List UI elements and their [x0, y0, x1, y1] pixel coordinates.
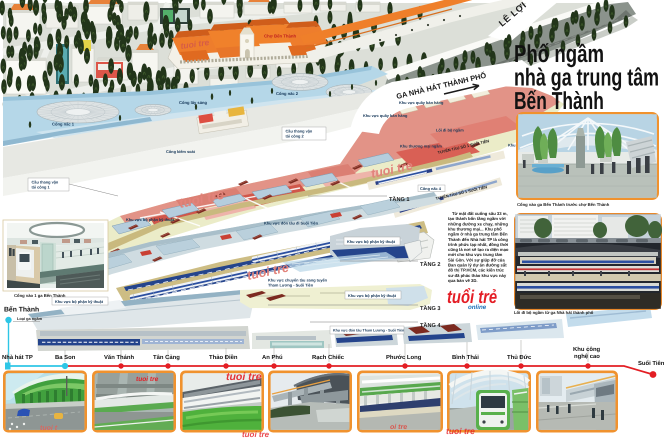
- svg-text:Cổng kiểm soát: Cổng kiểm soát: [166, 149, 196, 154]
- svg-text:Tân Cảng: Tân Cảng: [153, 354, 180, 361]
- svg-text:Khu vực quầy bán hàng: Khu vực quầy bán hàng: [399, 100, 444, 105]
- svg-text:Bến Thành: Bến Thành: [4, 306, 39, 314]
- svg-text:Bình Thái: Bình Thái: [452, 354, 479, 361]
- svg-text:TẦNG 2: TẦNG 2: [420, 260, 441, 268]
- svg-text:Nhà hát TP: Nhà hát TP: [2, 354, 33, 361]
- svg-text:tuoi tre: tuoi tre: [136, 376, 159, 383]
- svg-text:tuoi tre: tuoi tre: [226, 371, 262, 383]
- svg-text:oi tre: oi tre: [390, 423, 407, 431]
- svg-text:tuoi tre: tuoi tre: [446, 426, 475, 436]
- svg-text:Cổng vào 1 ga Bến Thành: Cổng vào 1 ga Bến Thành: [14, 293, 66, 298]
- svg-text:tải công 1: tải công 1: [32, 185, 51, 190]
- svg-text:Rạch Chiếc: Rạch Chiếc: [312, 354, 345, 361]
- svg-text:Cổng nấc 1: Cổng nấc 1: [52, 122, 75, 127]
- svg-text:Khu thương mại ngầm: Khu thương mại ngầm: [400, 144, 442, 149]
- svg-text:TẦNG 3: TẦNG 3: [420, 304, 441, 312]
- svg-text:Cổng lấy sáng: Cổng lấy sáng: [179, 100, 207, 105]
- svg-text:Khu vực quầy bán hàng: Khu vực quầy bán hàng: [363, 113, 408, 118]
- svg-text:Khu công: Khu công: [573, 346, 601, 353]
- svg-text:Suối Tiên: Suối Tiên: [638, 360, 665, 367]
- svg-text:Loại ga ngầm: Loại ga ngầm: [17, 316, 43, 321]
- svg-text:Tham Lương - Suối Tiên: Tham Lương - Suối Tiên: [268, 283, 314, 288]
- svg-text:tuoi t: tuoi t: [40, 424, 58, 432]
- svg-text:Ba Son: Ba Son: [55, 354, 76, 361]
- svg-text:Văn Thánh: Văn Thánh: [104, 354, 135, 361]
- svg-text:Phước Long: Phước Long: [386, 354, 422, 361]
- svg-text:Chợ Bến Thành: Chợ Bến Thành: [264, 34, 297, 39]
- svg-text:nghệ cao: nghệ cao: [574, 353, 600, 360]
- svg-text:tải công 2: tải công 2: [286, 134, 305, 139]
- svg-text:Cổng nấc 4: Cổng nấc 4: [420, 186, 442, 191]
- svg-text:Khu vực bộ phận kỹ thuật: Khu vực bộ phận kỹ thuật: [348, 293, 397, 298]
- svg-text:tuoi tre: tuoi tre: [242, 430, 270, 438]
- svg-text:Cổng nấc 2: Cổng nấc 2: [276, 91, 299, 96]
- svg-text:TẦNG 4: TẦNG 4: [420, 321, 441, 329]
- svg-text:Khu vực bộ phận kỹ thuật: Khu vực bộ phận kỹ thuật: [55, 299, 104, 304]
- svg-text:online: online: [468, 304, 487, 311]
- svg-text:TẦNG 1: TẦNG 1: [389, 195, 410, 203]
- svg-text:Thủ Đức: Thủ Đức: [507, 354, 532, 361]
- svg-text:Bến Thành: Bến Thành: [514, 88, 604, 115]
- svg-text:Cổng vào ga Bến Thành trước ch: Cổng vào ga Bến Thành trước chợ Bến Thàn…: [517, 202, 610, 207]
- svg-text:An Phú: An Phú: [262, 354, 283, 361]
- svg-text:Khu vực bộ phận kỹ thuật: Khu vực bộ phận kỹ thuật: [126, 217, 175, 222]
- svg-text:Lối đi bộ ngầm: Lối đi bộ ngầm: [436, 128, 464, 133]
- svg-text:Thảo Điền: Thảo Điền: [209, 354, 238, 361]
- svg-text:qua bản vẽ 3D.: qua bản vẽ 3D.: [448, 278, 478, 283]
- svg-text:Khu vực bộ phận kỹ thuật: Khu vực bộ phận kỹ thuật: [347, 239, 396, 244]
- svg-text:Khu vực đón tàu Tham Lương - S: Khu vực đón tàu Tham Lương - Suối Tiên: [333, 329, 404, 333]
- svg-text:Khu vực đón tàu đi Suối Tiên: Khu vực đón tàu đi Suối Tiên: [264, 221, 319, 226]
- svg-text:Lối đi bộ ngầm từ ga Nhà hát t: Lối đi bộ ngầm từ ga Nhà hát thành phố: [514, 310, 594, 315]
